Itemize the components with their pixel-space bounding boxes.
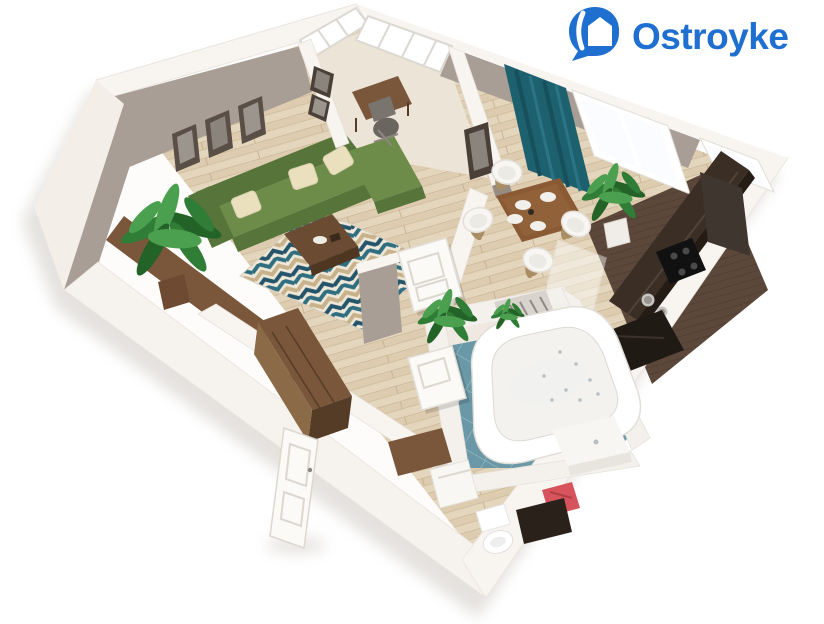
brand-name: Ostroyke	[632, 16, 788, 57]
ostroyke-logo: Ostroyke	[569, 7, 788, 61]
floorplan-screenshot: Ostroyke	[0, 0, 824, 624]
floorplan-render: Ostroyke	[0, 0, 824, 624]
ostroyke-logo-icon	[569, 7, 619, 61]
